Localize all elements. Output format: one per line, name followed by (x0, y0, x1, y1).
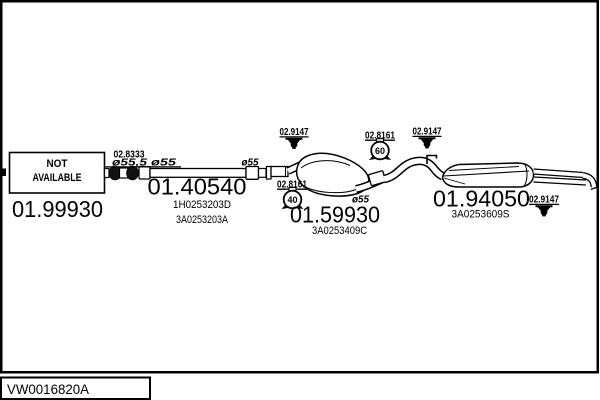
part-number-center-muffler: 01.59930 (290, 202, 380, 228)
middle-pipe-stub (259, 169, 267, 178)
exhaust-parts-diagram-page: VW0016820A NOT AVAILABLE 01.99930 02.833… (0, 0, 600, 400)
center-inlet-flange (267, 167, 272, 180)
drawing-number-box: VW0016820A (1, 378, 150, 400)
not-available-line2: AVAILABLE (33, 172, 82, 184)
oem-code-1h0253203d: 1H0253203D (173, 199, 231, 211)
part-number-front-section: 01.99930 (12, 196, 103, 222)
oem-code-3a0253609s: 3A0253609S (452, 209, 510, 221)
clamp-9147-tail-label: 02.9147 (529, 194, 559, 206)
oem-code-3a0253203a: 3A0253203A (176, 214, 229, 226)
dia-55-5-label: ø55,5 (112, 157, 147, 169)
drawing-code-label: VW0016820A (7, 381, 90, 397)
not-available-line1: NOT (47, 158, 68, 170)
dia-55-front-label: ø55 (151, 157, 176, 169)
frame-connector-stub (1, 169, 7, 177)
oem-code-3a0253409c: 3A0253409C (312, 225, 367, 237)
dia-55-middle-label: ø55 (242, 158, 259, 169)
front-flange (105, 169, 110, 178)
front-section-group: NOT AVAILABLE 01.99930 (10, 153, 105, 223)
clamp-9147-center-label: 02.9147 (280, 126, 309, 138)
clamp-9147-top-label: 02.9147 (413, 126, 442, 138)
hanger-ring-60-size: 60 (375, 146, 385, 156)
part-number-middle-pipe: 01.40540 (148, 174, 247, 200)
